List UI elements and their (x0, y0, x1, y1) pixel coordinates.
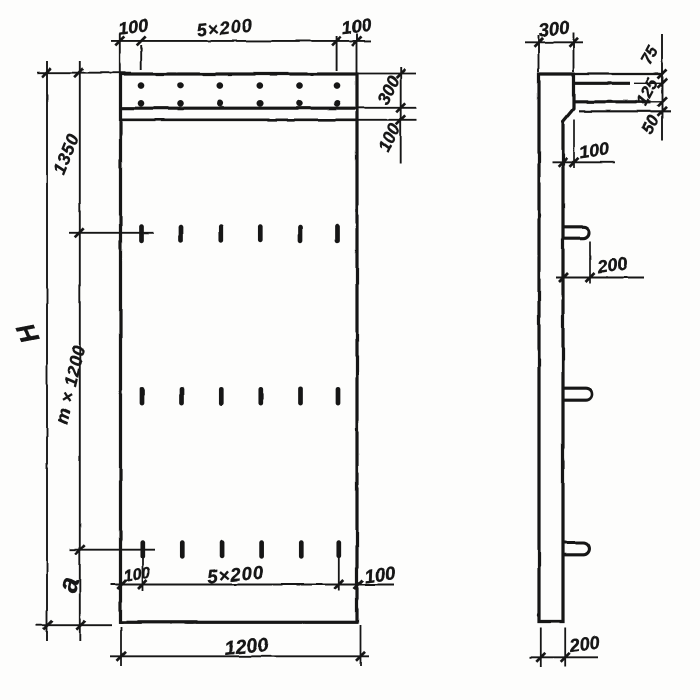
svg-text:H: H (10, 318, 45, 348)
svg-text:200: 200 (567, 632, 601, 656)
svg-text:50: 50 (638, 112, 663, 137)
svg-text:100: 100 (117, 15, 149, 39)
svg-text:100: 100 (340, 15, 372, 39)
svg-text:5×200: 5×200 (196, 16, 254, 41)
svg-text:100: 100 (123, 565, 152, 586)
svg-text:300: 300 (537, 16, 571, 40)
svg-text:125: 125 (633, 75, 662, 108)
svg-text:1200: 1200 (224, 634, 270, 660)
svg-text:300: 300 (373, 72, 404, 107)
svg-text:100: 100 (363, 562, 397, 587)
svg-text:100: 100 (578, 138, 611, 162)
svg-text:200: 200 (595, 253, 629, 277)
svg-text:75: 75 (637, 42, 662, 67)
svg-text:5×200: 5×200 (206, 561, 265, 587)
svg-text:1350: 1350 (49, 131, 83, 178)
svg-text:m × 1200: m × 1200 (52, 343, 89, 425)
